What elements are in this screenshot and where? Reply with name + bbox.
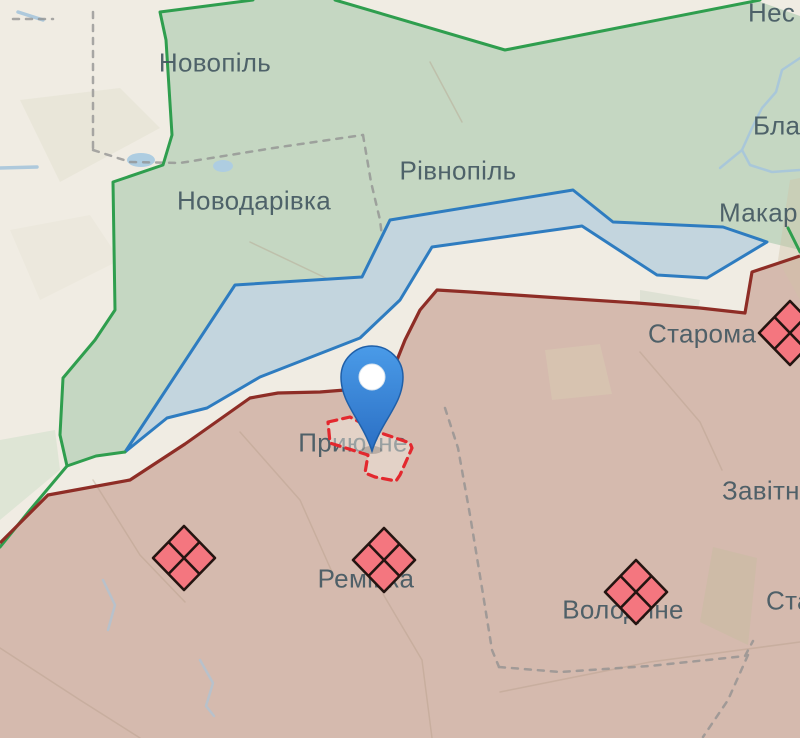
map-canvas[interactable]: Новопіль Новодарівка Рівнопіль Нес Бла М… [0,0,800,738]
unit-symbols [153,301,800,624]
unit-diamond-icon [353,528,415,592]
unit-diamond-icon [759,301,800,365]
unit-diamond-icon [153,526,215,590]
unit-diamond-icon [605,560,667,624]
map-overlay-layer [0,0,800,738]
